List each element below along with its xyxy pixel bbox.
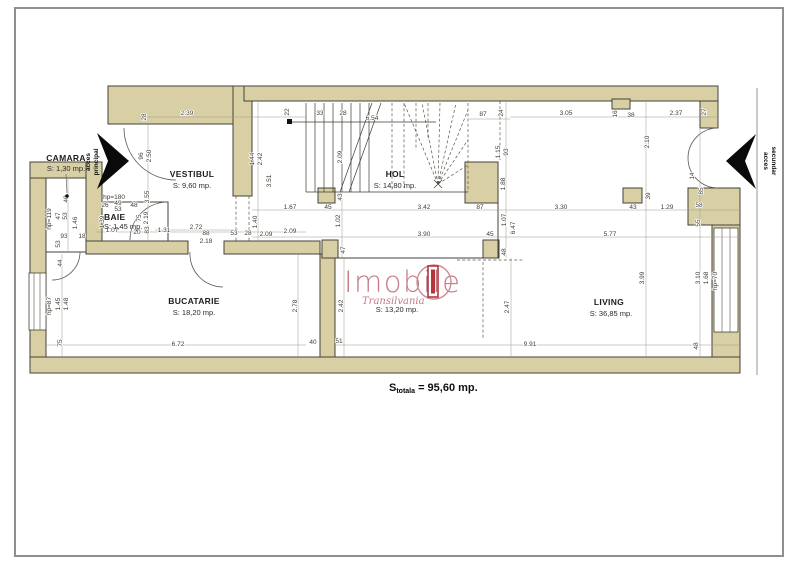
dimension-label: 1.48 — [63, 297, 70, 310]
room-label-hol: HOL — [386, 169, 405, 179]
dimension-label: 2.72 — [190, 224, 203, 231]
dimension-label: 3.90 — [418, 231, 431, 238]
dimension-label: hp=119 — [46, 208, 53, 230]
dimension-label: 1.07 — [501, 213, 508, 226]
dimension-label: 2.09 — [260, 231, 273, 238]
dimension-label: 26 — [101, 202, 109, 209]
dimension-label: 93 — [60, 233, 68, 240]
dimension-label: 40 — [309, 339, 317, 346]
dimension-label: 48 — [693, 342, 700, 350]
acces-principal-label-2: principal — [93, 148, 100, 175]
dimension-label: 14 — [689, 172, 696, 180]
room-area-hol: S: 14,80 mp. — [374, 181, 417, 190]
dimension-label: 16 — [612, 110, 619, 118]
floorplan-page: 282.392233286.5487243.0516382.3727962.50… — [0, 0, 800, 566]
dimension-label: 75 — [136, 214, 143, 222]
dimension-label: 18 — [78, 233, 86, 240]
acces-secundar-arrow-icon — [726, 134, 756, 189]
dimension-label: 5.77 — [604, 231, 617, 238]
dimension-label: 96 — [138, 152, 145, 160]
dimension-label: 6.54 — [366, 115, 379, 122]
dimension-label: 3.51 — [266, 174, 273, 187]
dimension-label: hp=87 — [46, 296, 53, 315]
dimension-label: 2.42 — [257, 152, 264, 165]
acces-secundar-label-1: acces — [762, 152, 769, 170]
dimension-label: 44 — [57, 259, 64, 267]
acces-principal-arrow-icon — [97, 133, 129, 189]
dimension-label: 87 — [476, 204, 484, 211]
total-area-label: Stotala = 95,60 mp. — [389, 382, 478, 395]
dimension-label: 58 — [695, 202, 703, 209]
dimension-label: 3.05 — [560, 110, 573, 117]
dimension-label: 2.19 — [143, 211, 150, 224]
interior-partitions — [46, 88, 757, 375]
dimension-label: 6.47 — [510, 221, 517, 234]
dimension-label: 1.31 — [158, 227, 171, 234]
watermark-region: Transilvania — [362, 296, 425, 307]
dimension-label: 43 — [629, 204, 637, 211]
dimension-label: 38 — [627, 112, 635, 119]
room-area-living: S: 36,85 mp. — [590, 309, 633, 318]
dimension-label: 2.39 — [181, 110, 194, 117]
dimension-label: 39 — [645, 192, 652, 200]
dimension-label: 2.18 — [200, 238, 213, 245]
dimension-label: 1.02 — [335, 214, 342, 227]
dimension-label: 83 — [144, 226, 151, 234]
dimension-label: 87 — [479, 111, 487, 118]
dimension-label: 47 — [340, 246, 347, 254]
room-label-bucatarie: BUCATARIE — [168, 296, 220, 306]
dimension-label: 9.91 — [524, 341, 537, 348]
dimension-label: 53 — [62, 212, 69, 220]
dimension-label: 1.68 — [703, 271, 710, 284]
dimension-label: 33 — [316, 110, 324, 117]
dimension-label: 85 — [698, 187, 705, 195]
floorplan-drawing: 282.392233286.5487243.0516382.3727962.50… — [0, 0, 800, 566]
dimension-label: 2.37 — [670, 110, 683, 117]
dimension-label: 43 — [337, 193, 344, 201]
dimension-label: 1.40 — [252, 215, 259, 228]
dimension-label: 2.09 — [337, 150, 344, 163]
dimension-label: 3.42 — [418, 204, 431, 211]
acces-secundar-label-2: secundar — [770, 147, 777, 176]
room-area-baie: S: 1,45 mp. — [104, 222, 142, 231]
room-area-vestibul: S: 9,60 mp. — [173, 181, 211, 190]
room-label-camara: CAMARA — [46, 153, 86, 163]
dimension-label: 3.10 — [695, 271, 702, 284]
dimension-label: 1.15 — [495, 145, 502, 158]
dimension-label: 28 — [339, 110, 347, 117]
dimension-label: 88 — [202, 230, 210, 237]
watermark-brand: Imobile — [344, 265, 461, 299]
dimension-label: 6.72 — [172, 341, 185, 348]
dimension-label: 51 — [335, 338, 343, 345]
room-label-vestibul: VESTIBUL — [170, 169, 214, 179]
watermark: Imobile Transilvania — [344, 265, 461, 307]
dimension-label: 2.10 — [644, 135, 651, 148]
dimension-label: 2.47 — [504, 300, 511, 313]
dimension-label: 22 — [284, 108, 291, 116]
dimension-label: 1.29 — [661, 204, 674, 211]
dimension-label: 48 — [501, 248, 508, 256]
dimension-label: 3.30 — [555, 204, 568, 211]
room-label-baie: BAIE — [104, 212, 126, 222]
camara-leader-dot — [65, 194, 69, 198]
dimension-label: 2.50 — [146, 149, 153, 162]
dimension-label: 1.88 — [500, 177, 507, 190]
dimension-label: 47 — [55, 212, 62, 220]
dimension-label: 45 — [486, 231, 494, 238]
dimension-label: 1.46 — [72, 216, 79, 229]
dimension-label: 48 — [130, 202, 138, 209]
dimension-label: 3.55 — [144, 190, 151, 203]
room-area-camara: S: 1,30 mp. — [47, 164, 85, 173]
dimension-label: 2.42 — [338, 299, 345, 312]
dimension-label: 24 — [498, 109, 505, 117]
dimension-label: 3.99 — [639, 271, 646, 284]
dimension-label: 75 — [57, 339, 64, 347]
dimension-label: hp=70 — [712, 271, 719, 290]
room-label-living: LIVING — [594, 297, 624, 307]
dimension-label: 28 — [141, 113, 148, 121]
dimension-label: 28 — [244, 230, 252, 237]
dimension-label: 27 — [701, 108, 708, 116]
dimension-label: 93 — [503, 148, 510, 156]
room-area-bucatarie: S: 18,20 mp. — [173, 308, 216, 317]
dimension-label: 2.78 — [292, 299, 299, 312]
dimension-label: 1.67 — [284, 204, 297, 211]
acces-principal-label-1: acces — [85, 153, 92, 171]
dimension-label: 2.09 — [284, 228, 297, 235]
dimension-label: 1.44 — [249, 152, 256, 165]
dimension-label: 1.45 — [55, 297, 62, 310]
dimension-label: 45 — [324, 204, 332, 211]
dimension-label: 55 — [695, 219, 702, 227]
dimension-label: 53 — [55, 240, 62, 248]
dimension-label: 53 — [230, 230, 238, 237]
